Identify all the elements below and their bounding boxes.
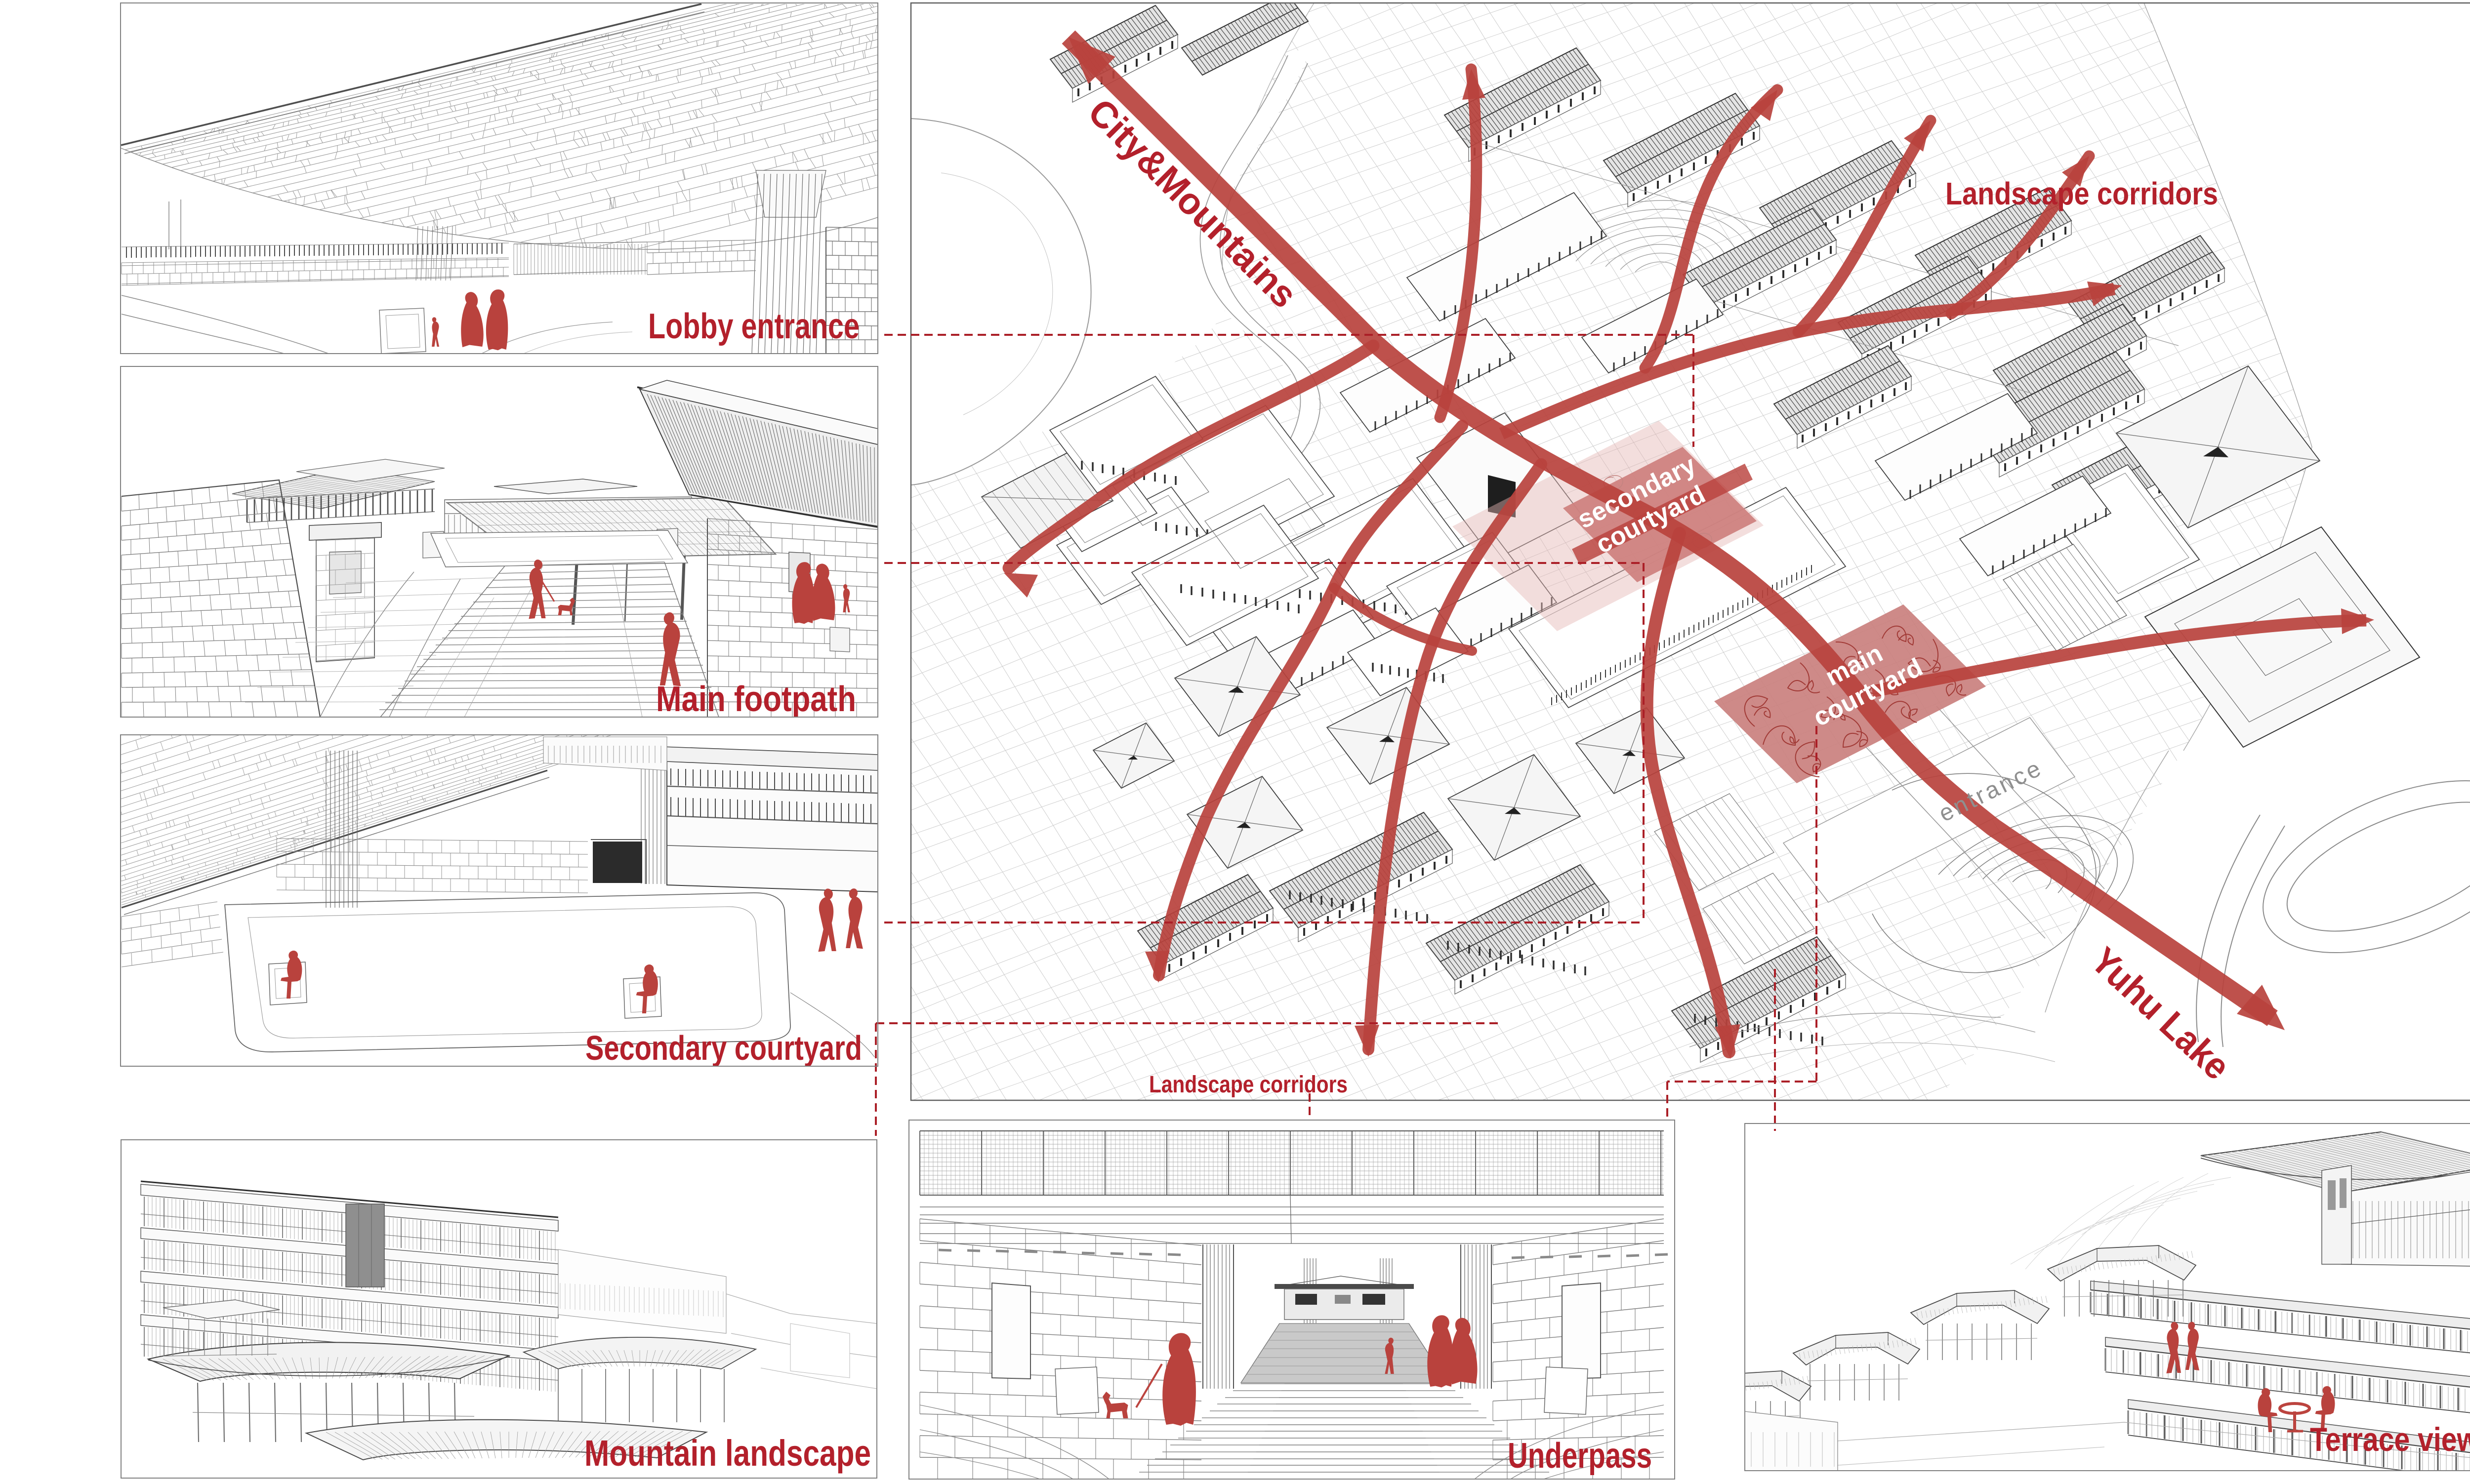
svg-text:Landscape corridors: Landscape corridors <box>1149 1072 1348 1098</box>
svg-text:Underpass: Underpass <box>1508 1436 1652 1476</box>
svg-text:Main footpath: Main footpath <box>656 680 856 719</box>
svg-text:Landscape corridors: Landscape corridors <box>1945 176 2218 211</box>
svg-text:Mountain landscape: Mountain landscape <box>584 1433 871 1474</box>
svg-text:Terrace view: Terrace view <box>2310 1421 2470 1458</box>
svg-text:Secondary courtyard: Secondary courtyard <box>585 1029 862 1067</box>
svg-text:Lobby entrance: Lobby entrance <box>648 307 860 346</box>
